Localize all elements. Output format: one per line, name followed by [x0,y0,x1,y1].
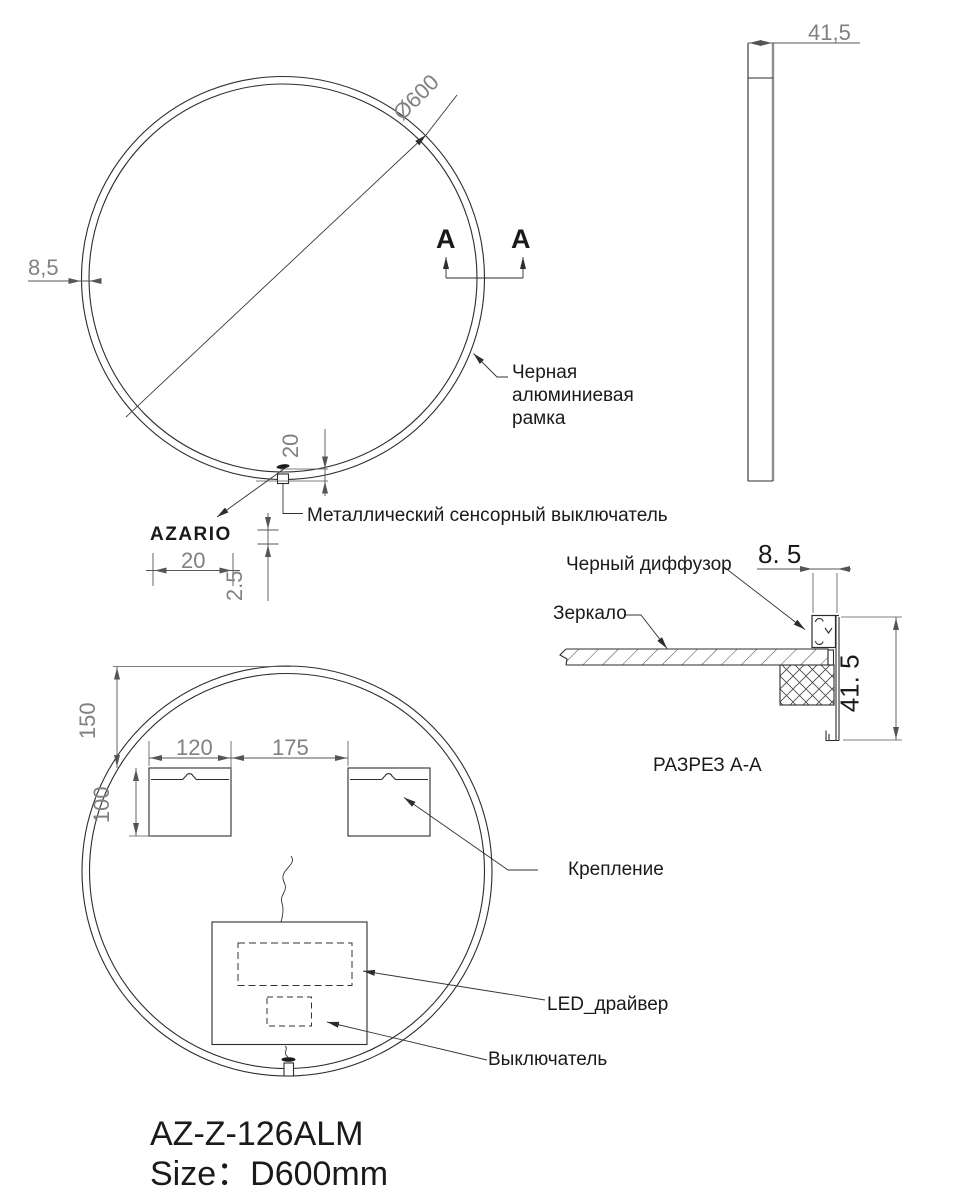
model-number: AZ-Z-126ALM [150,1115,364,1154]
back-view-dimensions [113,667,545,1061]
lip-width-dimension: 8. 5 [758,540,801,570]
touch-switch-label: Металлический сенсорный выключатель [307,505,668,527]
technical-drawing-canvas: Ø600 A A 8,5 Черная алюминиевая рамка 20… [0,0,958,1200]
side-depth-dimension: 41,5 [808,20,851,45]
bracket-label: Крепление [568,859,664,881]
frame-label: Черная алюминиевая рамка [512,361,634,430]
logo-gap-dimension: 2.5 [223,571,246,602]
front-view [82,77,485,484]
profile-depth-dimension: 41. 5 [837,654,864,712]
bracket-height-dimension: 100 [90,786,113,823]
switch-label: Выключатель [488,1049,607,1071]
diffuser-label: Черный диффузор [566,554,732,576]
mirror-label: Зеркало [553,603,627,625]
switch-offset-dimension: 20 [279,434,302,458]
back-touch-switch [284,1063,294,1076]
led-driver-outline [238,943,352,986]
section-title: РАЗРЕЗ А-А [653,755,762,777]
top-offset-dimension: 150 [76,702,99,739]
azario-logo: AZARIO [150,524,232,546]
led-driver-label: LED_драйвер [547,994,668,1016]
bracket-spacing-dimension: 175 [272,735,309,760]
back-view [82,666,492,1076]
bracket-width-dimension: 120 [176,735,213,760]
mirror-glass-section [566,649,828,665]
drawing-linework [0,0,958,1200]
rim-thickness-dimension: 8,5 [28,255,59,280]
section-marker-right: A [511,224,531,255]
touch-switch [278,474,289,484]
mounting-bracket [149,768,231,836]
switch-outline [267,997,312,1026]
adhesive-block-section [780,665,834,705]
section-marker-left: A [436,224,456,255]
logo-width-dimension: 20 [181,548,205,573]
side-view [748,43,860,481]
size-label: Size：D600mm [150,1155,388,1194]
back-outer-rim [82,666,492,1076]
back-inner-rim [90,674,485,1069]
power-cable [281,856,293,922]
